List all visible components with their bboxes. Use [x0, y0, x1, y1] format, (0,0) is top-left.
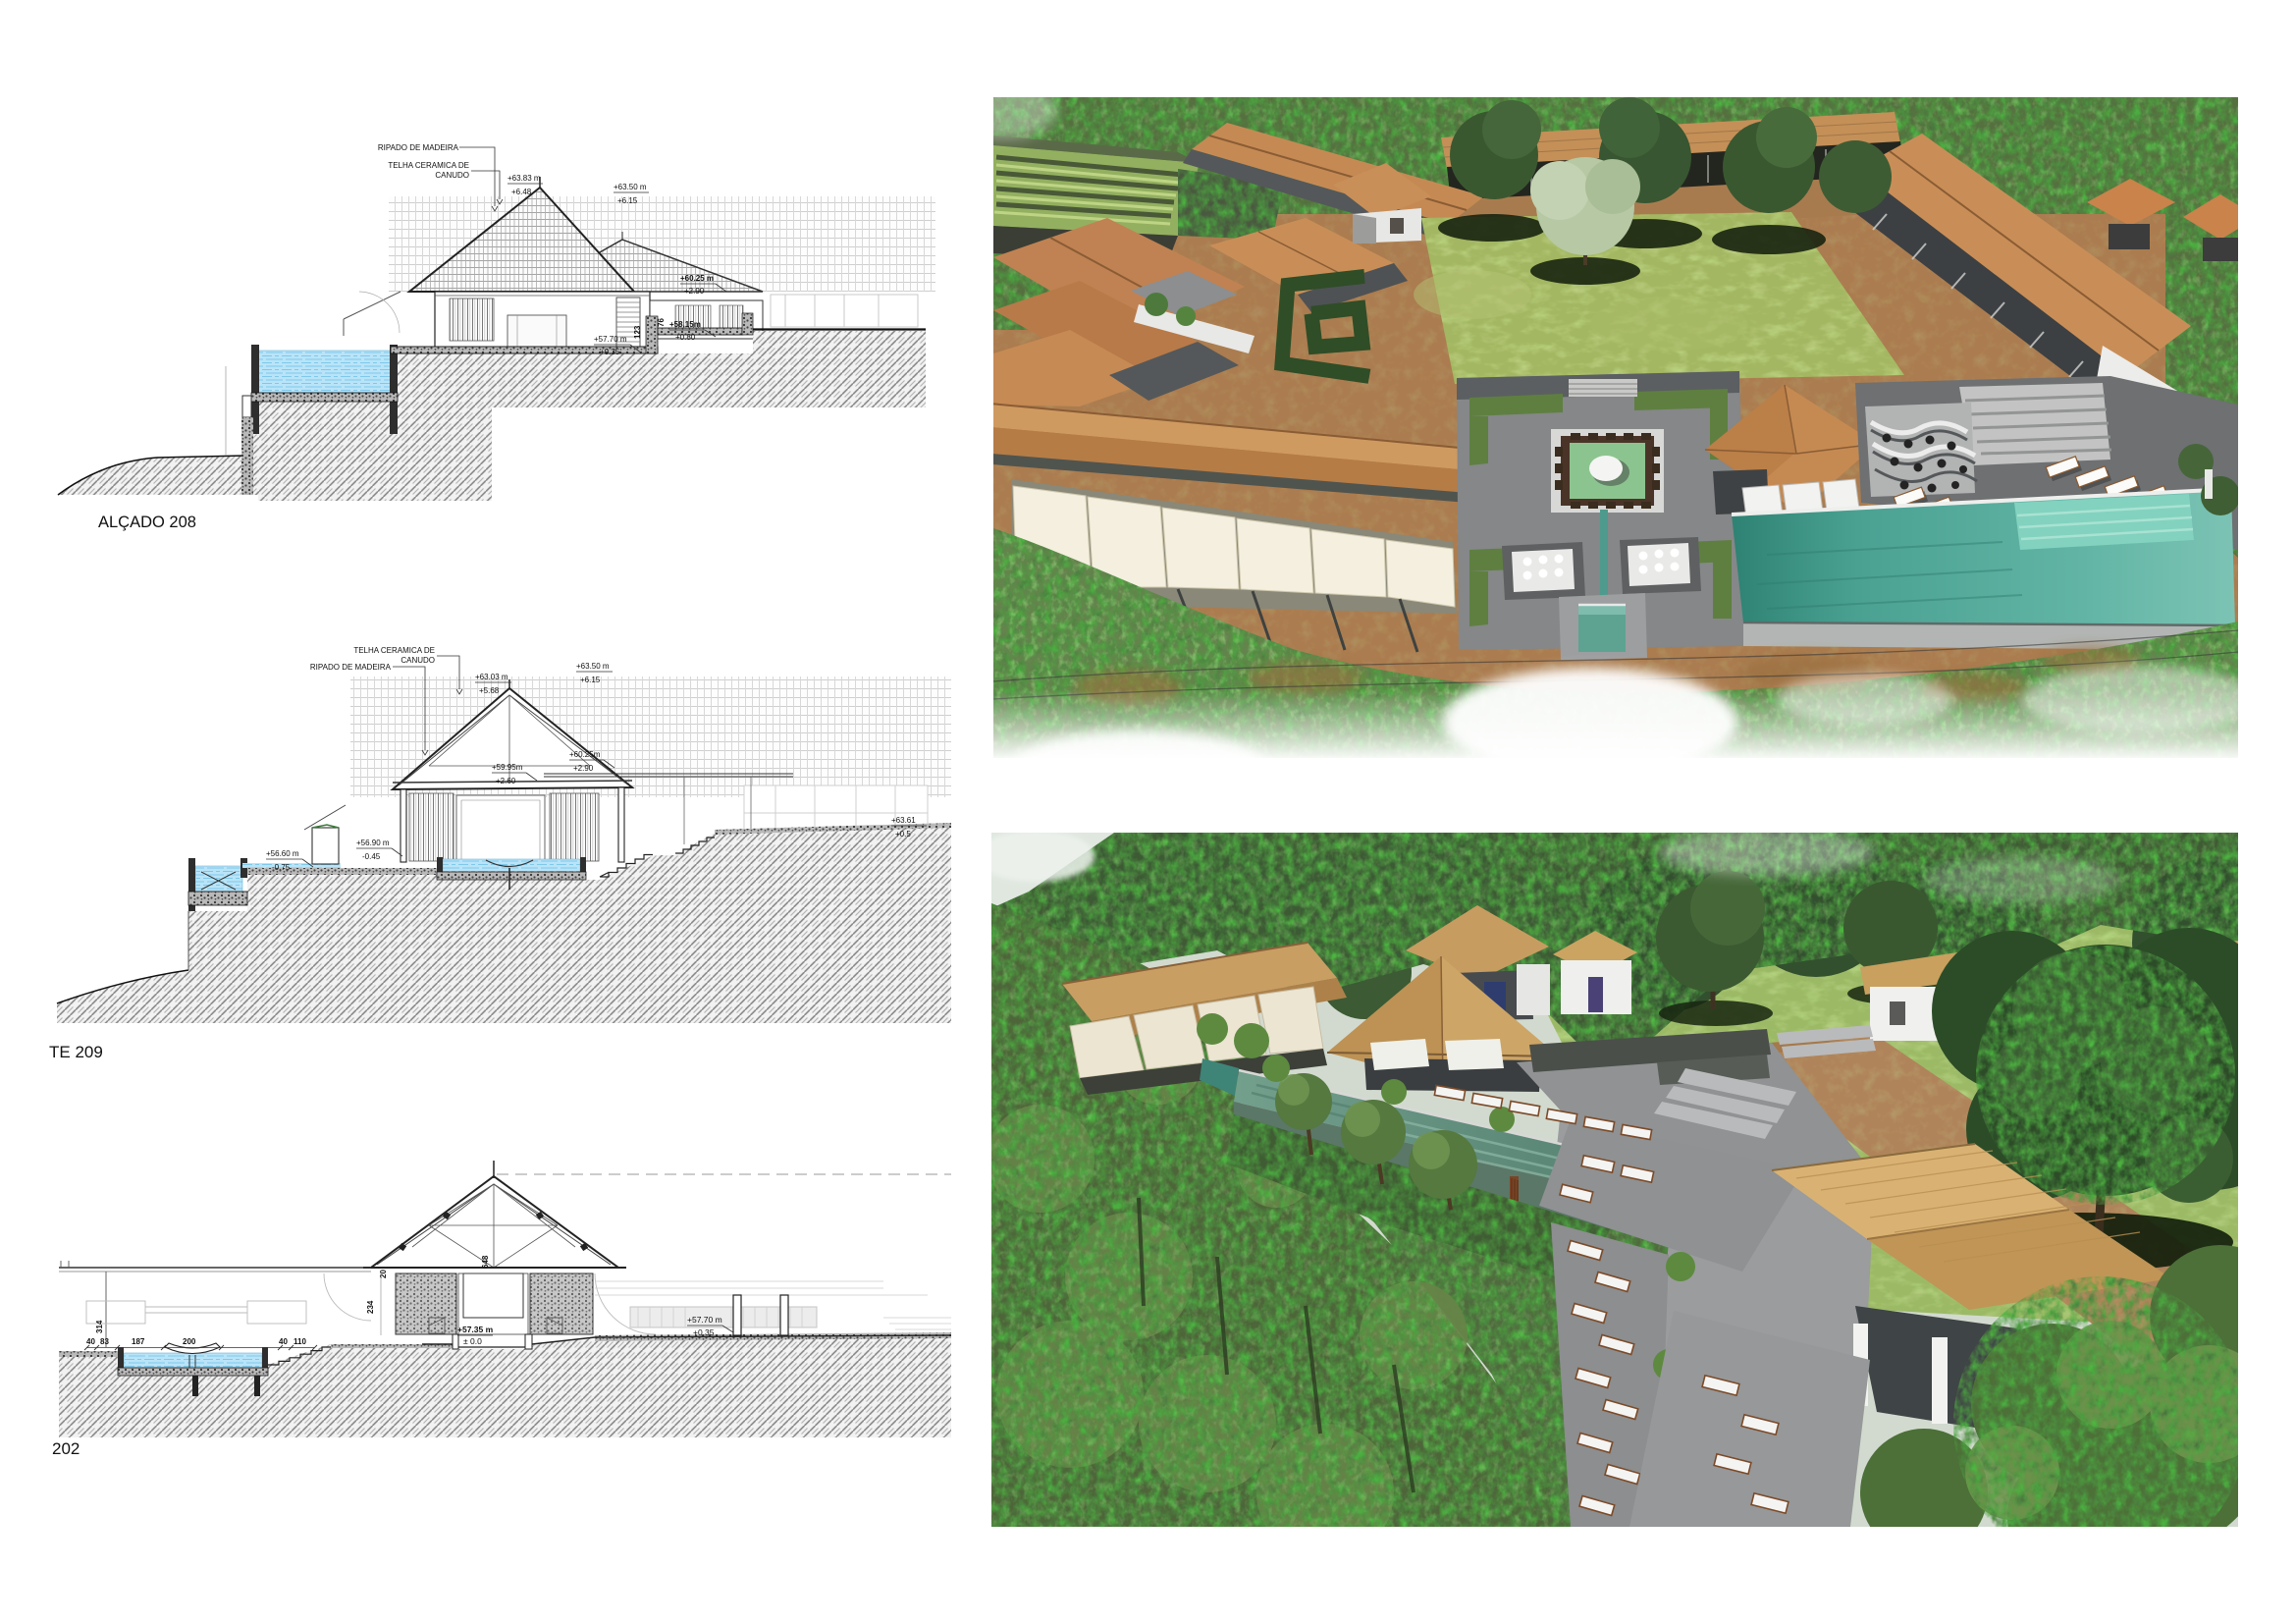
svg-text:+63.61: +63.61 [891, 816, 916, 825]
svg-text:+0.80: +0.80 [675, 333, 696, 342]
svg-text:TE 209: TE 209 [49, 1043, 103, 1061]
svg-text:+58.15m: +58.15m [669, 320, 701, 329]
svg-text:20: 20 [379, 1270, 388, 1278]
svg-text:110: 110 [294, 1337, 306, 1346]
svg-text:RIPADO DE MADEIRA: RIPADO DE MADEIRA [310, 663, 392, 672]
svg-text:+2.90: +2.90 [573, 764, 594, 773]
svg-text:CANUDO: CANUDO [435, 171, 469, 180]
svg-text:83: 83 [100, 1337, 109, 1346]
svg-text:-0.45: -0.45 [362, 852, 381, 861]
svg-text:+63.83 m: +63.83 m [507, 174, 541, 183]
svg-text:RIPADO DE MADEIRA: RIPADO DE MADEIRA [378, 143, 459, 152]
svg-text:+56.90 m: +56.90 m [356, 839, 390, 847]
svg-text:+0.35: +0.35 [600, 348, 620, 356]
svg-text:202: 202 [52, 1439, 80, 1458]
svg-text:76: 76 [657, 318, 666, 327]
svg-text:TELHA CERAMICA DE: TELHA CERAMICA DE [388, 161, 469, 170]
svg-text:ALÇADO 208: ALÇADO 208 [98, 514, 196, 531]
svg-text:+2.60: +2.60 [496, 777, 516, 785]
svg-text:+6.15: +6.15 [580, 676, 601, 684]
svg-text:+56.60 m: +56.60 m [266, 849, 299, 858]
svg-text:187: 187 [132, 1337, 145, 1346]
svg-text:+60.25m: +60.25m [569, 750, 601, 759]
svg-text:314: 314 [95, 1320, 104, 1333]
svg-text:648: 648 [481, 1255, 490, 1269]
svg-text:40: 40 [279, 1337, 288, 1346]
svg-text:± 0.0: ± 0.0 [463, 1336, 482, 1346]
svg-text:+59.95m: +59.95m [492, 763, 523, 772]
svg-text:+63.03 m: +63.03 m [475, 673, 508, 681]
svg-text:+57.70 m: +57.70 m [687, 1315, 722, 1325]
svg-text:+0.35: +0.35 [693, 1327, 715, 1337]
svg-text:200: 200 [183, 1337, 196, 1346]
svg-text:CANUDO: CANUDO [400, 656, 435, 665]
svg-text:40: 40 [86, 1337, 95, 1346]
svg-text:+2.90: +2.90 [684, 287, 705, 296]
svg-text:123: 123 [633, 325, 642, 339]
svg-text:+57.35 m: +57.35 m [457, 1325, 494, 1334]
svg-text:+63.50 m: +63.50 m [614, 183, 647, 191]
svg-text:+0.5: +0.5 [895, 830, 911, 839]
svg-text:+63.50 m: +63.50 m [576, 662, 610, 671]
svg-text:+6.48: +6.48 [511, 188, 532, 196]
svg-text:234: 234 [366, 1300, 375, 1314]
svg-text:+57.70 m: +57.70 m [594, 335, 627, 344]
svg-text:-0.75: -0.75 [272, 863, 291, 872]
svg-text:+5.68: +5.68 [479, 686, 500, 695]
svg-text:TELHA CERAMICA DE: TELHA CERAMICA DE [353, 646, 435, 655]
svg-text:+6.15: +6.15 [617, 196, 638, 205]
svg-text:+60.25 m: +60.25 m [680, 274, 714, 283]
